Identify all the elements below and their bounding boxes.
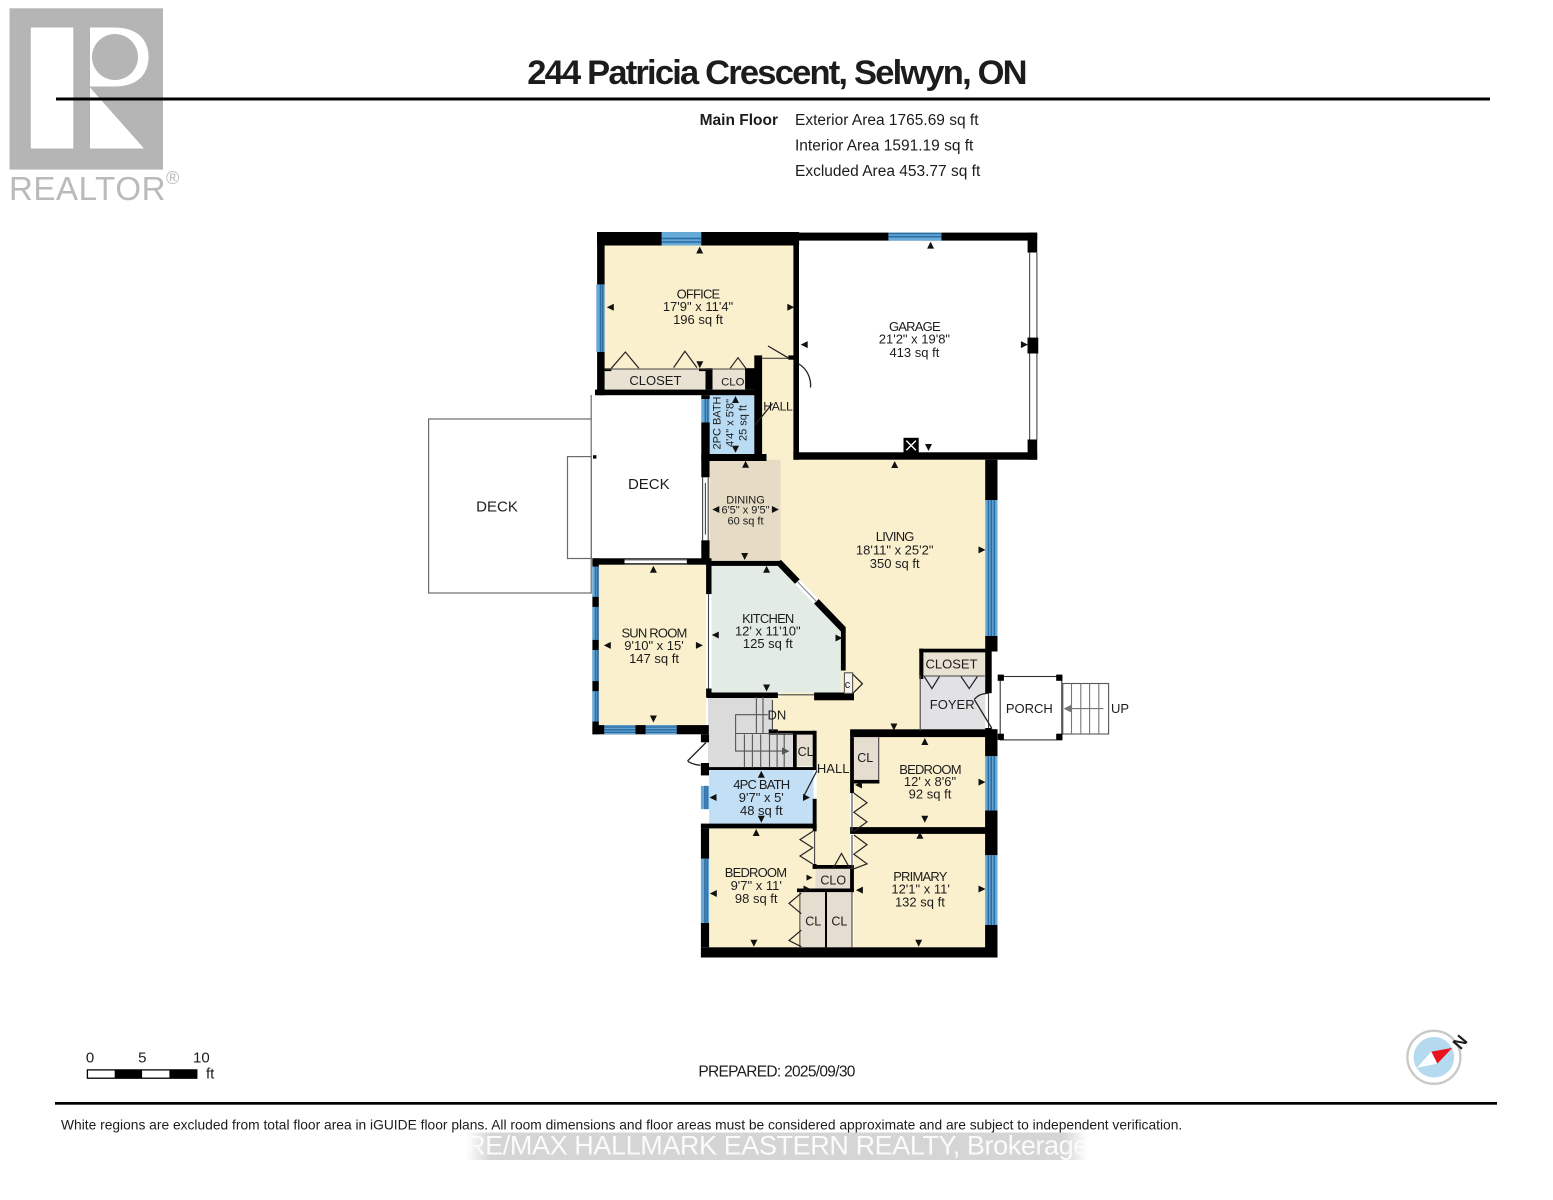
svg-text:413 sq ft: 413 sq ft xyxy=(889,345,939,360)
svg-text:PREPARED: 2025/09/30: PREPARED: 2025/09/30 xyxy=(698,1064,855,1081)
svg-text:147 sq ft: 147 sq ft xyxy=(629,651,679,666)
svg-text:21'2" x 19'8": 21'2" x 19'8" xyxy=(879,331,951,346)
svg-text:Main Floor: Main Floor xyxy=(700,112,778,129)
svg-text:125 sq ft: 125 sq ft xyxy=(743,636,793,651)
svg-text:CL: CL xyxy=(805,915,821,929)
svg-text:2PC BATH: 2PC BATH xyxy=(712,396,724,449)
svg-text:Excluded Area 453.77 sq ft: Excluded Area 453.77 sq ft xyxy=(795,163,981,180)
svg-text:CLO: CLO xyxy=(721,376,745,388)
svg-text:PORCH: PORCH xyxy=(1006,701,1053,716)
svg-text:0: 0 xyxy=(86,1049,94,1066)
svg-text:5: 5 xyxy=(138,1049,146,1066)
svg-text:UP: UP xyxy=(1111,701,1129,716)
svg-text:244 Patricia Crescent, Selwyn,: 244 Patricia Crescent, Selwyn, ON xyxy=(527,54,1026,92)
svg-text:Exterior Area 1765.69 sq ft: Exterior Area 1765.69 sq ft xyxy=(795,112,979,129)
svg-text:Interior Area 1591.19 sq ft: Interior Area 1591.19 sq ft xyxy=(795,137,974,154)
svg-text:CL: CL xyxy=(798,745,814,759)
svg-text:CL: CL xyxy=(831,915,847,929)
svg-text:350 sq ft: 350 sq ft xyxy=(870,556,920,571)
svg-text:CLO: CLO xyxy=(820,874,846,888)
svg-text:FOYER: FOYER xyxy=(930,697,975,712)
svg-text:DN: DN xyxy=(768,707,787,722)
svg-text:92 sq ft: 92 sq ft xyxy=(909,786,952,801)
svg-text:CLOSET: CLOSET xyxy=(629,373,681,388)
svg-text:48 sq ft: 48 sq ft xyxy=(740,803,783,818)
svg-text:®: ® xyxy=(166,168,179,188)
svg-text:25 sq ft: 25 sq ft xyxy=(738,405,750,441)
svg-text:4'4" x 5'8": 4'4" x 5'8" xyxy=(725,399,737,447)
svg-text:HALL: HALL xyxy=(763,399,793,413)
svg-text:196 sq ft: 196 sq ft xyxy=(673,312,723,327)
svg-text:HALL: HALL xyxy=(817,761,850,776)
svg-text:CLOSET: CLOSET xyxy=(925,657,977,672)
svg-text:98 sq ft: 98 sq ft xyxy=(735,891,778,906)
svg-text:ft: ft xyxy=(206,1066,215,1083)
svg-text:RE/MAX HALLMARK EASTERN REALTY: RE/MAX HALLMARK EASTERN REALTY, Brokerag… xyxy=(466,1131,1088,1161)
svg-text:c: c xyxy=(845,679,851,691)
svg-text:CL: CL xyxy=(857,751,873,765)
svg-text:DECK: DECK xyxy=(628,476,670,493)
svg-text:DECK: DECK xyxy=(476,499,518,516)
svg-text:10: 10 xyxy=(193,1049,210,1066)
svg-text:132 sq ft: 132 sq ft xyxy=(895,894,945,909)
svg-text:REALTOR: REALTOR xyxy=(9,170,166,207)
svg-text:60 sq ft: 60 sq ft xyxy=(727,515,763,527)
